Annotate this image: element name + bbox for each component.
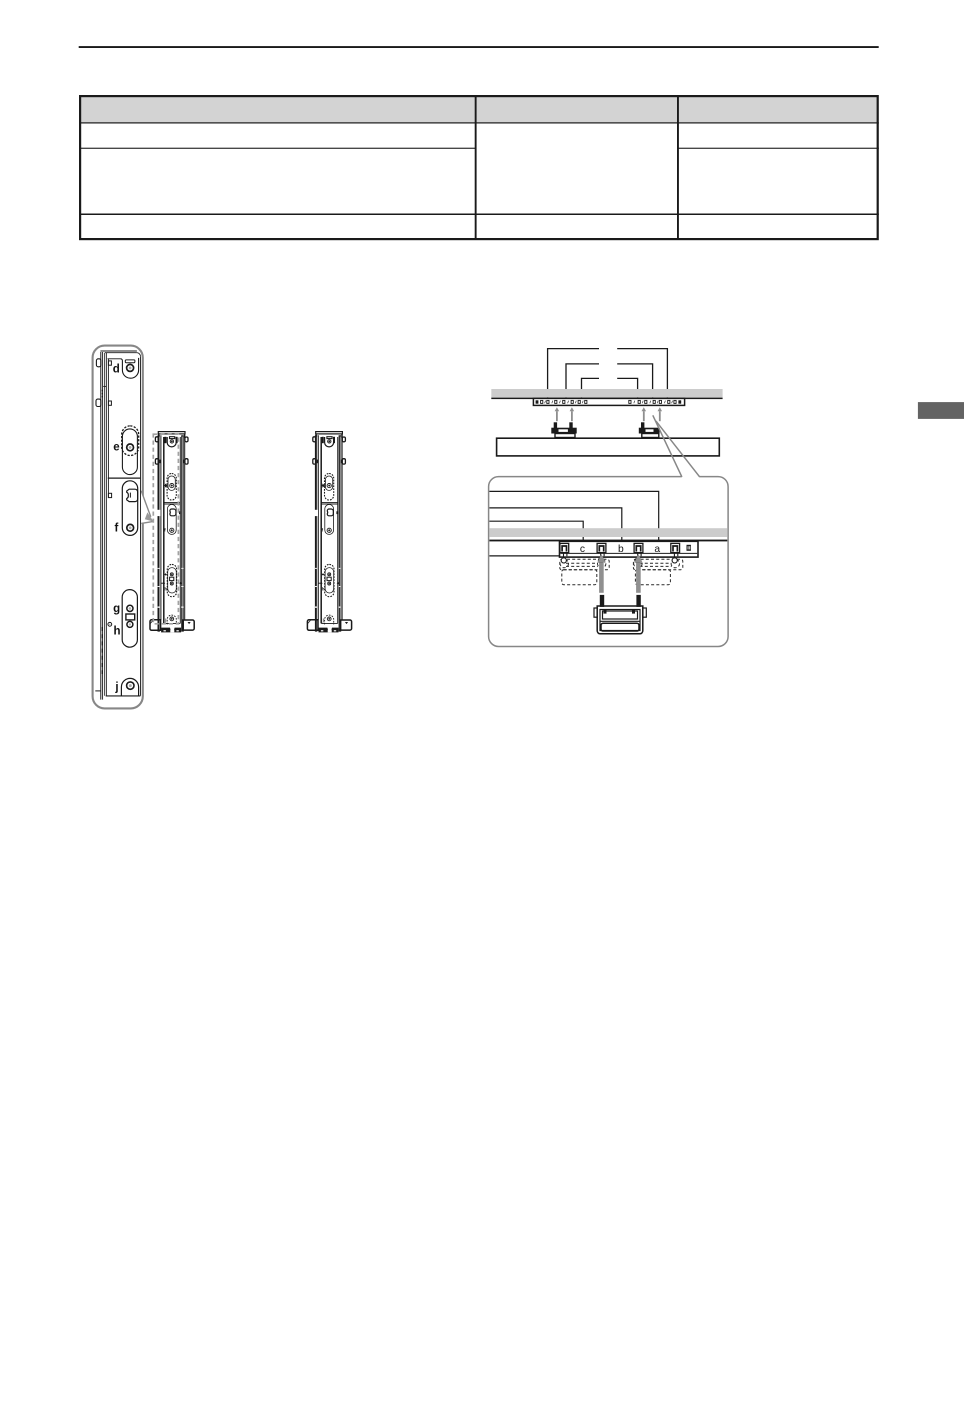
- svg-text:f: f: [114, 522, 118, 534]
- svg-text:h: h: [113, 626, 120, 638]
- svg-text:j: j: [114, 681, 118, 693]
- svg-text:e: e: [113, 441, 119, 453]
- svg-text:d: d: [113, 363, 120, 375]
- svg-text:b: b: [618, 544, 624, 555]
- svg-text:c: c: [580, 544, 585, 555]
- svg-text:a: a: [654, 544, 660, 555]
- svg-text:g: g: [113, 603, 120, 615]
